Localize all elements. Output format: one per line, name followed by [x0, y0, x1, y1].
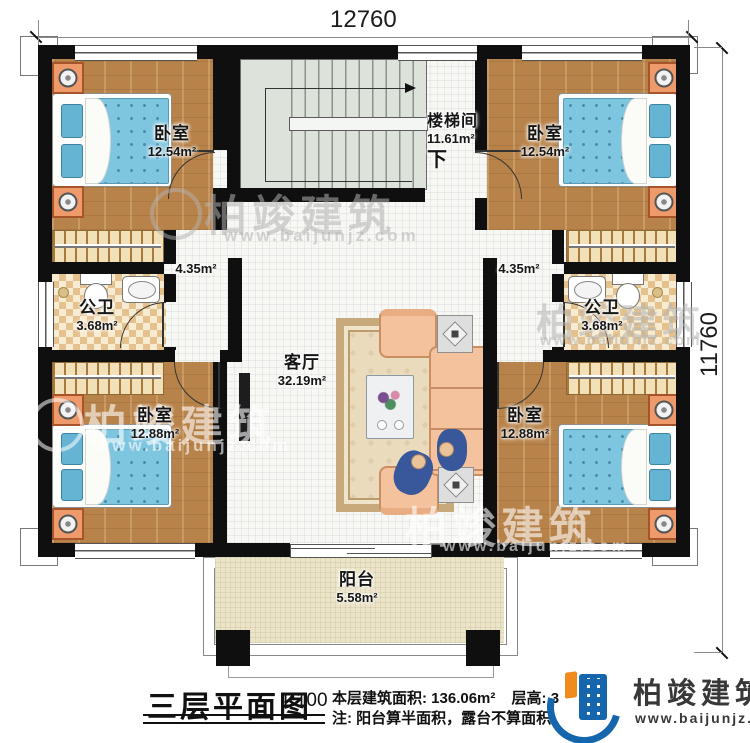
- floor-drain-icon: [58, 287, 69, 298]
- plan-note: 注: 阳台算半面积，露台不算面积: [332, 707, 551, 728]
- pillow: [649, 469, 671, 501]
- area-info: 本层建筑面积: 136.06m² 层高: 3: [332, 687, 559, 708]
- title-underline: [143, 714, 325, 724]
- wall: [52, 350, 175, 362]
- wall: [38, 45, 52, 282]
- stair-walk-line: [265, 88, 412, 182]
- armchair: [379, 309, 437, 358]
- pillow: [61, 144, 83, 178]
- right-dimension-line: [722, 48, 723, 653]
- coffee-table: [366, 375, 414, 439]
- wardrobe: [52, 362, 164, 395]
- room-label-living: 客厅 32.19m²: [278, 353, 326, 389]
- side-table-center: [452, 331, 459, 338]
- sink-basin: [128, 281, 156, 299]
- extension-line: [688, 20, 689, 45]
- wall: [38, 347, 52, 557]
- wardrobe: [566, 362, 678, 395]
- nightstand: [52, 62, 84, 94]
- room-label-bath-left: 公卫 3.68m²: [76, 298, 117, 334]
- brand-logo: 柏竣建筑 www.baijunjz.com: [545, 664, 745, 740]
- wardrobe: [52, 230, 164, 264]
- person-head: [439, 442, 454, 457]
- cup: [394, 420, 404, 430]
- wardrobe-rail: [569, 377, 675, 379]
- watermark-url: www.baijunjz.com: [540, 332, 701, 349]
- wall: [564, 262, 676, 274]
- room-label-balcony: 阳台 5.58m²: [336, 570, 377, 606]
- lamp-icon: [655, 69, 674, 88]
- wardrobe-rail: [569, 246, 675, 248]
- top-dimension-line: [35, 37, 692, 38]
- wall: [676, 45, 690, 282]
- room-label-bedroom-bl: 卧室 12.88m²: [131, 406, 179, 442]
- watermark-url: www.baijunjz.com: [443, 538, 629, 556]
- room-label-bedroom-tr: 卧室 12.54m²: [521, 124, 569, 160]
- window: [398, 45, 477, 61]
- door-leaf: [497, 362, 499, 408]
- wall: [213, 59, 240, 150]
- room-label-bedroom-tl: 卧室 12.54m²: [148, 124, 196, 160]
- watermark-url: www.baijunjz.com: [96, 436, 291, 456]
- wall: [195, 543, 290, 557]
- window: [522, 45, 642, 61]
- watermark-logo-icon: [150, 188, 202, 240]
- balcony-column: [216, 630, 250, 666]
- pillow: [61, 469, 83, 501]
- balcony-column: [466, 630, 500, 666]
- lamp-icon: [655, 401, 674, 420]
- nightstand: [52, 186, 84, 218]
- brand-building-orange-icon: [565, 671, 577, 699]
- flower-decor: [375, 388, 403, 412]
- wall: [483, 258, 497, 350]
- top-dimension-label: 12760: [330, 6, 397, 34]
- bed: [558, 93, 678, 187]
- wardrobe: [566, 230, 678, 264]
- extension-line: [694, 47, 722, 48]
- brand-website: www.baijunjz.com: [635, 710, 750, 726]
- room-label-stairwell: 楼梯间 11.61m²: [427, 112, 478, 147]
- pillow: [61, 104, 83, 138]
- wall: [477, 45, 522, 59]
- wall: [228, 258, 242, 350]
- watermark-url: www.baijunjz.com: [224, 226, 419, 246]
- wall: [52, 262, 164, 274]
- wall: [475, 198, 487, 230]
- side-table: [437, 315, 473, 353]
- wall: [676, 347, 690, 557]
- window: [75, 45, 197, 61]
- lamp-icon: [655, 193, 674, 212]
- lamp-icon: [59, 193, 78, 212]
- wall: [552, 230, 564, 264]
- person-head: [409, 452, 429, 472]
- wardrobe-rail: [55, 246, 161, 248]
- lamp-icon: [655, 515, 674, 534]
- wall: [220, 350, 242, 362]
- stair-down-label: 下: [427, 148, 447, 172]
- door-leaf: [162, 302, 164, 347]
- wall: [543, 350, 676, 362]
- wall: [197, 45, 398, 59]
- room-label-bedroom-br: 卧室 12.88m²: [501, 406, 549, 442]
- stair-direction-arrow-icon: [405, 83, 416, 93]
- wardrobe-rail: [55, 377, 161, 379]
- pillow: [649, 144, 671, 178]
- person: [437, 429, 467, 471]
- stairwell: [240, 59, 427, 190]
- door-leaf: [475, 150, 521, 152]
- lamp-icon: [59, 69, 78, 88]
- watermark-logo-icon: [30, 398, 84, 452]
- floor-plan-page: 12760 11760: [0, 0, 750, 743]
- bed-sheet: [621, 98, 647, 184]
- side-table-center: [453, 482, 460, 489]
- window: [75, 543, 195, 559]
- room-label-bath-right: 公卫 3.68m²: [581, 298, 622, 334]
- window: [38, 282, 54, 347]
- nightstand: [52, 508, 84, 540]
- extension-line: [694, 652, 722, 653]
- sink-icon: [122, 276, 160, 303]
- brand-name: 柏竣建筑: [633, 670, 750, 712]
- pillow: [649, 104, 671, 138]
- plan-scale: 1:100: [280, 690, 328, 712]
- area-label-hall-right: 4.35m²: [498, 261, 539, 277]
- wall: [483, 350, 497, 362]
- pillow: [649, 433, 671, 465]
- brand-building-blue-icon: [579, 674, 607, 720]
- cup: [377, 420, 387, 430]
- wall: [164, 274, 176, 302]
- lamp-icon: [59, 515, 78, 534]
- extension-line: [38, 20, 39, 45]
- area-label-hall-left: 4.35m²: [175, 261, 216, 277]
- bed-sheet: [621, 429, 647, 505]
- balcony-step-outline: [228, 654, 494, 678]
